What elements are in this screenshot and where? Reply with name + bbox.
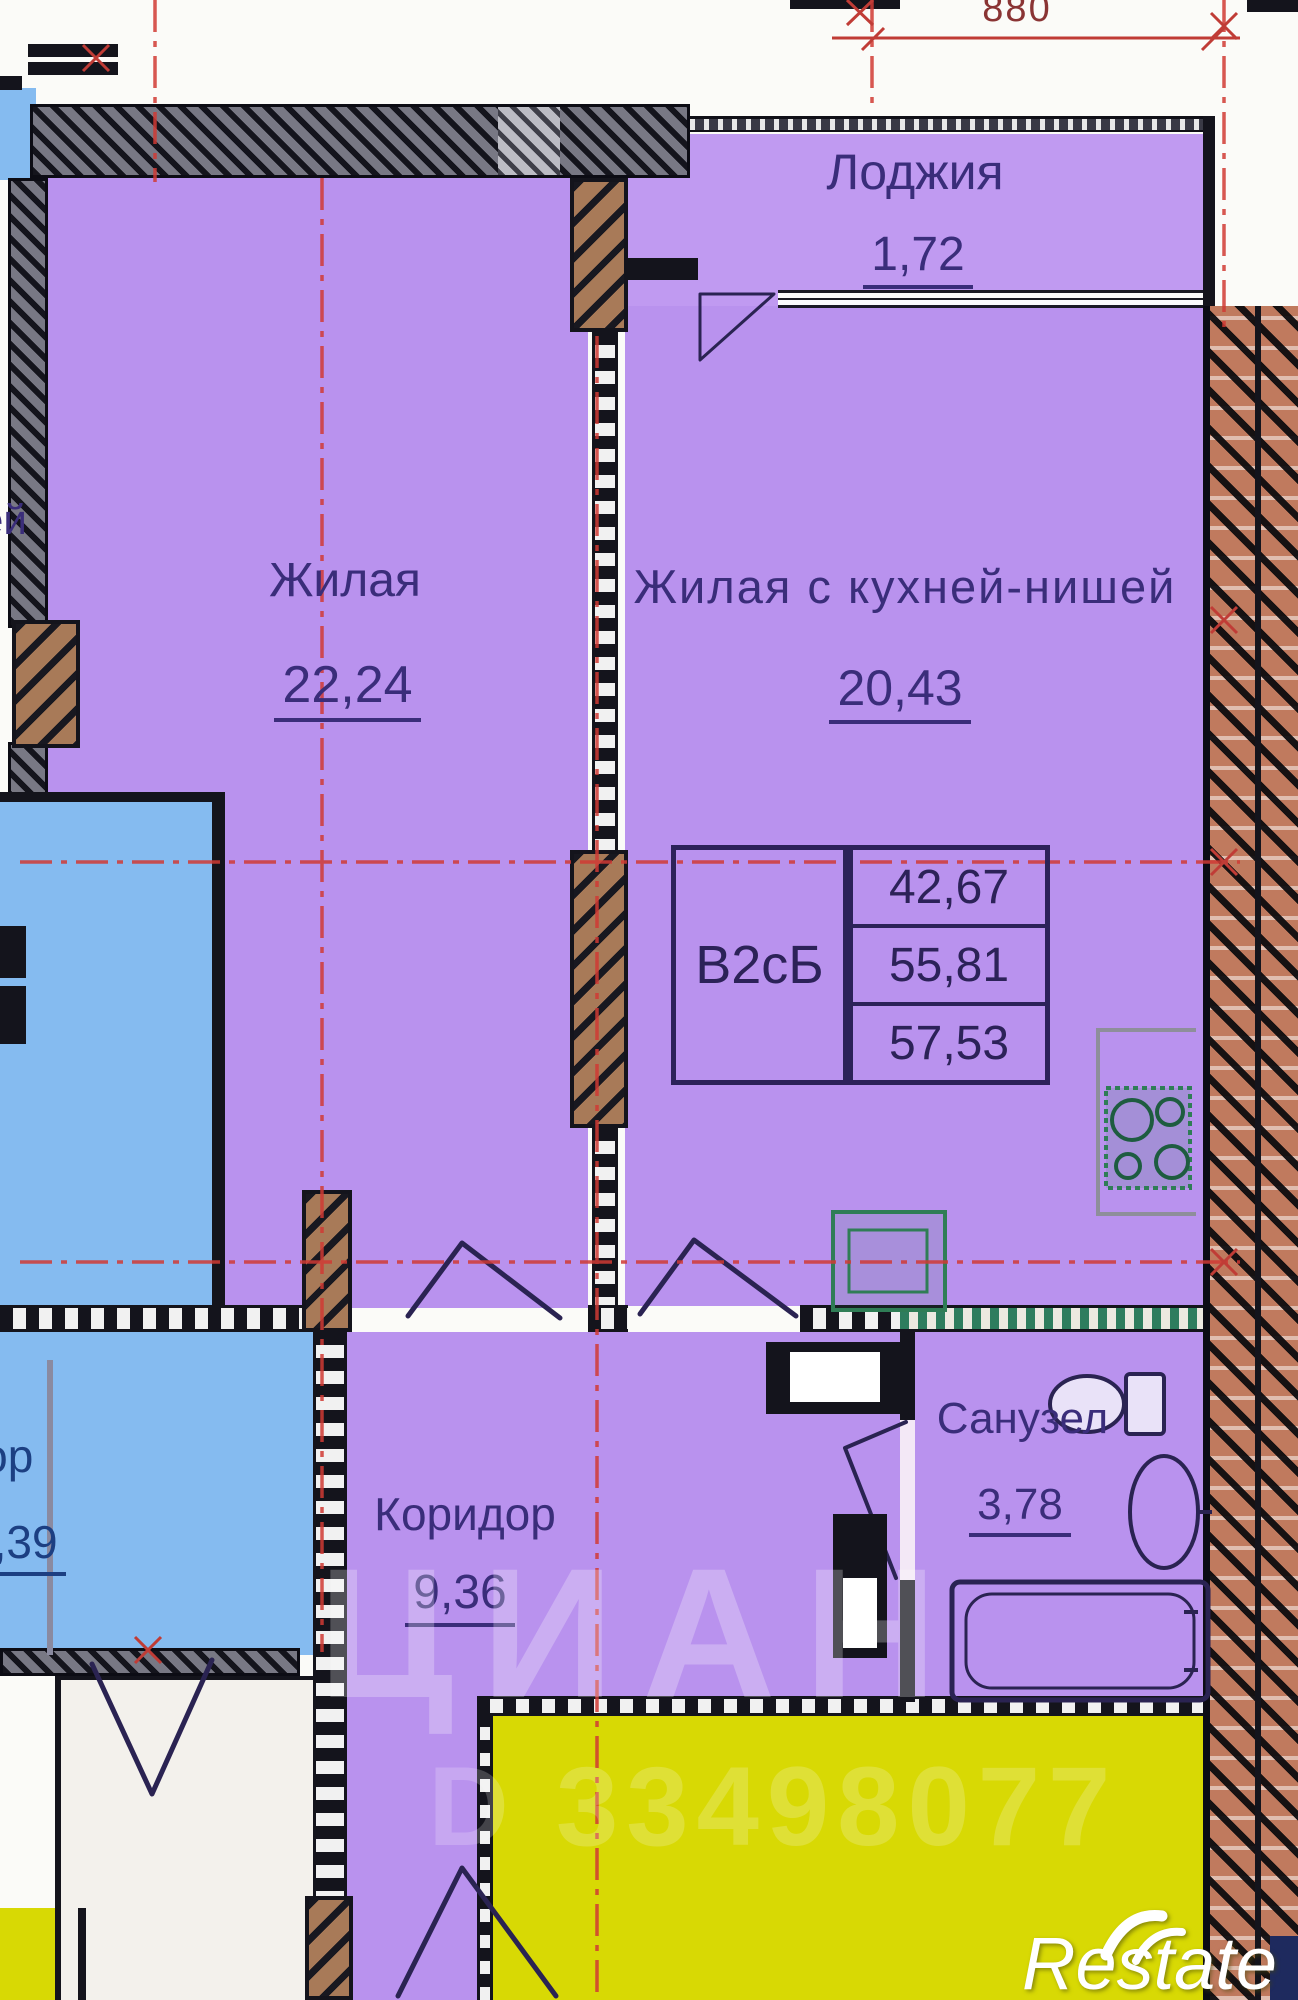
label-loggia-name: Лоджия xyxy=(800,146,1030,199)
unit-area-apartment-text: 55,81 xyxy=(889,938,1009,993)
watermark-listing-id: D 33498077 xyxy=(428,1742,1118,1871)
unit-table-label-cell: В2сБ xyxy=(671,845,848,1085)
label-neighbor-corridor: ридор xyxy=(0,1432,144,1480)
neighbor-corridor-text: ридор xyxy=(0,1430,33,1482)
unit-area-living-row: 42,67 xyxy=(853,850,1045,924)
agency-logo: Restate xyxy=(988,1905,1298,2000)
living-name-text: Жилая xyxy=(269,554,421,607)
label-bathroom-name: Санузел xyxy=(895,1396,1150,1442)
label-neighbor-corridor-area: 7,39 xyxy=(0,1518,90,1566)
unit-area-total-text: 57,53 xyxy=(889,1016,1009,1071)
floorplan-canvas: Лоджия 1,72 Жилая 22,24 Жилая с кухней-н… xyxy=(0,0,1298,2000)
loggia-area-text: 1,72 xyxy=(863,228,972,289)
living-area-text: 22,24 xyxy=(274,656,420,722)
bathroom-area-text: 3,78 xyxy=(969,1480,1071,1537)
label-dimension-880: 880 xyxy=(952,0,1082,30)
watermark-brand-text: ЦИАН xyxy=(318,1531,965,1737)
label-bathroom-area: 3,78 xyxy=(950,1482,1090,1528)
unit-area-total-row: 57,53 xyxy=(853,1002,1045,1080)
loggia-name-text: Лоджия xyxy=(826,144,1003,200)
bathtub-icon xyxy=(952,1582,1208,1700)
unit-table-values: 42,67 55,81 57,53 xyxy=(848,845,1050,1085)
door-kitchen-swing xyxy=(640,1240,796,1316)
sink-icon xyxy=(1130,1456,1212,1568)
watermark-brand: ЦИАН xyxy=(318,1528,965,1740)
label-living-kitchen-area: 20,43 xyxy=(795,662,1005,715)
living-kitchen-area-text: 20,43 xyxy=(829,660,970,724)
label-loggia-area: 1,72 xyxy=(838,230,998,280)
door-balcony-swing xyxy=(700,294,774,360)
label-neighbor-fragment: ей xyxy=(0,498,40,542)
stove-icon xyxy=(1106,1088,1190,1188)
label-living-name: Жилая xyxy=(235,556,455,606)
dimension-880-text: 880 xyxy=(982,0,1051,30)
bathroom-name-text: Санузел xyxy=(937,1394,1108,1443)
neighbor-corridor-area-text: 7,39 xyxy=(0,1516,66,1576)
label-living-area: 22,24 xyxy=(250,658,445,713)
agency-logo-text: Restate xyxy=(1022,1922,1277,2000)
door-neighbor-entry-swing xyxy=(92,1660,212,1794)
label-living-kitchen-name: Жилая с кухней-нишей xyxy=(595,562,1215,611)
washing-machine-icon xyxy=(766,1342,908,1414)
door-living-swing xyxy=(408,1243,560,1318)
watermark-id-text: D 33498077 xyxy=(428,1744,1118,1869)
unit-area-living-text: 42,67 xyxy=(889,860,1009,915)
door-corridor-bottom-swing xyxy=(398,1868,556,1996)
neighbor-fragment-text: ей xyxy=(0,496,27,543)
unit-label-text: В2сБ xyxy=(695,934,824,996)
unit-area-apartment-row: 55,81 xyxy=(853,924,1045,1002)
dimension-line-top xyxy=(832,28,1240,50)
living-kitchen-name-text: Жилая с кухней-нишей xyxy=(634,560,1177,613)
